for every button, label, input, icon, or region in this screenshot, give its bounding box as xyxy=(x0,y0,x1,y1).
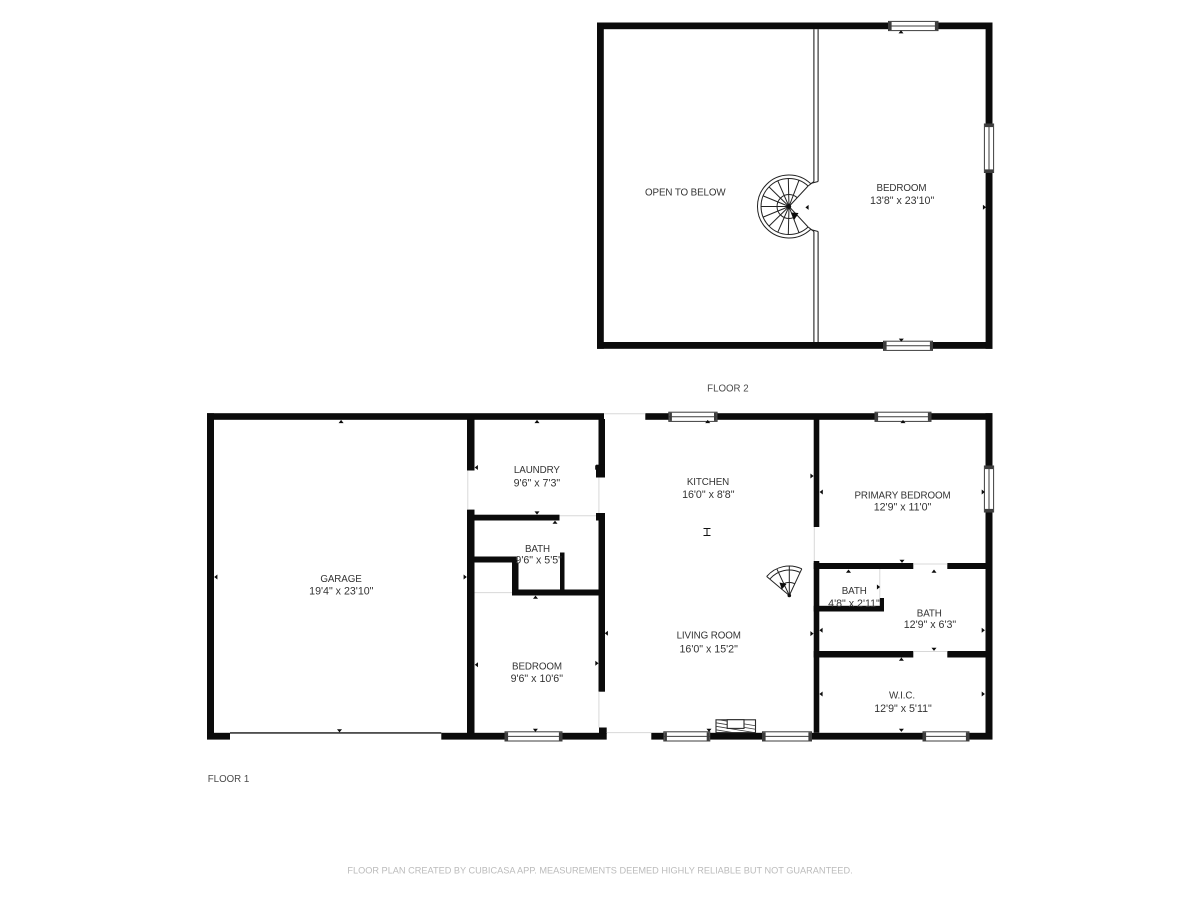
svg-text:OPEN TO BELOW: OPEN TO BELOW xyxy=(645,188,726,199)
svg-text:12'9" x 11'0": 12'9" x 11'0" xyxy=(874,501,932,513)
svg-text:BEDROOM: BEDROOM xyxy=(877,183,927,194)
svg-text:BATH: BATH xyxy=(842,586,867,597)
svg-text:12'9" x 6'3": 12'9" x 6'3" xyxy=(904,619,957,631)
svg-text:KITCHEN: KITCHEN xyxy=(687,477,729,488)
svg-text:9'6" x 7'3": 9'6" x 7'3" xyxy=(514,478,561,490)
svg-text:4'8" x 2'11": 4'8" x 2'11" xyxy=(828,598,880,610)
svg-text:FLOOR 1: FLOOR 1 xyxy=(208,774,249,785)
svg-text:12'9" x 5'11": 12'9" x 5'11" xyxy=(874,703,932,715)
svg-text:13'8" x 23'10": 13'8" x 23'10" xyxy=(870,195,934,207)
svg-text:FLOOR 2: FLOOR 2 xyxy=(707,384,748,395)
svg-text:9'6" x 5'5": 9'6" x 5'5" xyxy=(515,554,562,566)
svg-text:LIVING ROOM: LIVING ROOM xyxy=(677,631,741,642)
svg-text:BATH: BATH xyxy=(525,544,550,555)
svg-text:GARAGE: GARAGE xyxy=(320,574,362,585)
svg-text:PRIMARY BEDROOM: PRIMARY BEDROOM xyxy=(854,491,950,502)
svg-text:BEDROOM: BEDROOM xyxy=(512,661,562,672)
svg-text:9'6" x 10'6": 9'6" x 10'6" xyxy=(511,673,564,685)
svg-text:LAUNDRY: LAUNDRY xyxy=(514,465,561,476)
svg-text:19'4" x 23'10": 19'4" x 23'10" xyxy=(309,586,373,598)
svg-text:16'0" x 15'2": 16'0" x 15'2" xyxy=(680,644,739,656)
svg-text:16'0" x 8'8": 16'0" x 8'8" xyxy=(682,489,735,501)
svg-text:W.I.C.: W.I.C. xyxy=(889,691,915,702)
svg-text:FLOOR PLAN CREATED BY CUBICASA: FLOOR PLAN CREATED BY CUBICASA APP. MEAS… xyxy=(347,865,852,875)
